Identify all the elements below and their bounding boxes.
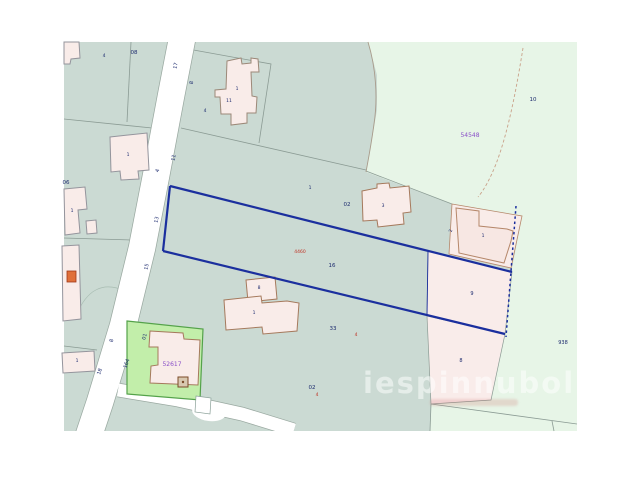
map-label-1: 1 [253,310,256,316]
map-label-1: 1 [309,185,312,191]
map-label-02: 02 [309,385,316,391]
map-label-08: 08 [131,50,138,56]
map-canvas: 1781141315816418010806100216330293898111… [0,0,640,480]
map-label-4: 4 [204,108,207,114]
map-label-9: 9 [470,291,473,297]
map-label-1: 1 [482,233,485,239]
watermark-subline [430,399,518,406]
map-label-33: 33 [330,326,337,332]
map-label-938: 938 [558,340,568,346]
map-label-10: 10 [530,97,537,103]
map-label-3: 3 [382,203,385,209]
map-label-8: 8 [258,285,261,291]
map-label-1: 1 [236,86,239,92]
driveway-notch [195,396,211,414]
map-label-4: 4 [316,392,319,398]
building-left-d [62,351,95,373]
map-label-11: 11 [226,98,232,104]
map-label-8: 8 [459,358,462,364]
building-left-c [62,245,81,321]
annex-marker-dot [182,381,184,383]
map-label-4: 4 [355,332,358,338]
map-label-4: 4 [103,53,106,59]
map-label-52617: 52617 [162,361,181,368]
map-label-4460: 4460 [294,249,306,255]
building-left-annex [86,220,97,234]
map-label-06: 06 [63,180,70,186]
cadastral-map: 1781141315816418010806100216330293898111… [0,0,640,480]
building-3 [362,183,411,227]
map-label-1: 1 [127,152,130,158]
map-label-02: 02 [344,202,351,208]
map-label-1: 1 [71,208,74,214]
orange-annex-marker [67,271,76,282]
map-label-16: 16 [329,263,336,269]
map-label-54548: 54548 [460,132,479,139]
map-label-1: 1 [76,358,79,364]
